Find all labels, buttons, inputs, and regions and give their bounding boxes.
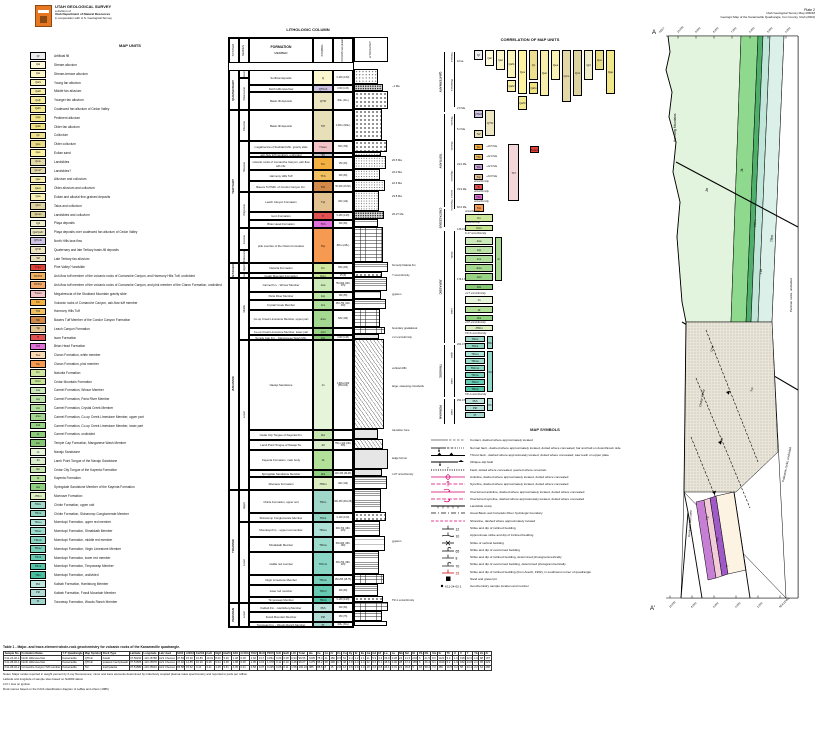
correlation-annotation: K-1? unconformity [465,232,486,235]
lith-annotation: vertical cliffs [392,367,407,370]
unit-label: Megabreccia of the Stoddard Mountain gra… [54,292,127,296]
unit-swatch: Tct/Thh [30,272,46,280]
map-units-title: MAP UNITS [30,44,230,49]
lith-system-band: JURASSIC [229,278,239,490]
unit-label: Stream-terrace alluvium [54,72,88,76]
lithologic-column-section: LITHOLOGIC COLUMN SYSTEM SERIES FORMATIO… [228,30,428,630]
unit-label: Bauers Tuff Member of the Condor Canyon … [54,318,130,322]
unit-swatch: TRcs [30,510,46,518]
lith-formation-cell: Navajo Sandstone [249,340,313,430]
lithology-pattern-segment [354,476,387,489]
lith-symbol-cell: Tcp [313,228,333,263]
map-unit-row: TcwClaron Formation, white member [30,351,230,360]
unit-label: Temple Cap Formation, Manganese Wash Mem… [54,441,126,445]
lith-thickness-cell: 0-50 (0-15) [333,85,353,92]
correlation-unit-box: Qaf1 [507,50,516,78]
table-cell: 100.24 [298,665,308,670]
lith-symbol-cell: TRcu [313,490,333,513]
map-symbol-description: Strike and dip of inclined bedding, dete… [470,555,562,559]
table-cell: 46.1 [383,665,390,670]
lith-symbol-cell: Tbf [313,110,333,141]
map-unit-row: TmpvPine Valley? landslide [30,263,230,272]
lith-thickness-cell [333,430,353,440]
correlation-series-label: Miocene [450,141,453,150]
lith-thickness-cell: 400 (120) [333,477,353,490]
lith-symbol-cell: TRcs [313,513,333,522]
map-symbol-description: Strike and dip of overturned bedding [470,548,520,552]
unit-label: Chinle Formation, Shinarump Conglomerate… [54,512,129,516]
lithology-pattern-segment [354,211,384,219]
correlation-annotation: ~20.5 Ma [486,145,497,148]
correlation-unit-box: Tcb [474,164,483,170]
lith-series-band: Lower [239,340,249,490]
correlation-unit-box: Kcm [465,225,493,231]
lith-thickness-cell: 150-250 (45-75) [333,575,353,585]
correlation-series-label: Upper [450,352,453,359]
lith-annotation: ~1 Ma [392,85,400,88]
lith-symbol-cell: Jnl [313,440,333,450]
unit-swatch: Taf [30,255,46,263]
unit-label: Cedar Mountain Formation [54,380,92,384]
map-unit-row: TcbBauers Tuff Member of the Condor Cany… [30,316,230,325]
lith-annotation: 23.8 Ma [392,195,402,198]
lith-thickness-cell: 100+ (30+) [333,622,353,627]
correlation-annotation: ~22.0 Ma [486,155,497,158]
unit-swatch: Qac [30,176,46,184]
cross-section-label: A [652,30,656,36]
lithology-pattern-segment [354,309,380,327]
map-unit-row: QatStream-terrace alluvium [30,69,230,78]
unit-swatch: Jnl [30,457,46,465]
map-unit-row: TiIsom Formation [30,333,230,342]
map-symbol-description: Fault, dotted where concealed, queried w… [470,468,546,472]
map-symbol-row: K11-24-02-1Geochemistry sample location … [430,583,660,590]
correlation-unit-box: Tcc [474,144,483,150]
lith-thickness-cell: 750-1,100 (230-335) [333,440,353,450]
correlation-unit-box: TRmu [465,351,485,357]
correlation-era-label: TERTIARY [438,153,441,168]
lith-symbol-cell: Jks [313,470,333,477]
correlation-unit-box: Jtm [465,284,493,290]
correlation-era-label: PERMIAN [438,405,441,419]
lith-thickness-cell: 600-700 (180-215) [333,522,353,537]
unit-swatch: Tmsm [30,290,46,298]
correlation-unit-box: Jc [495,237,502,281]
correlation-series-label: Pleistocene [450,78,453,90]
map-unit-row: QacAlluvium and colluvium [30,175,230,184]
map-symbol-description: Sand and gravel pit [470,577,497,581]
lith-system-band: TERTIARY [229,110,239,263]
map-unit-row: Qpl/QafCPlaya deposits over coalesced fa… [30,228,230,237]
map-unit-row: PtToroweap Formation, Woods Ranch Member [30,597,230,606]
correlation-unit-box: Qat [496,50,505,70]
correlation-unit-box: TRmt [465,386,485,392]
table-cell: 9 [411,665,418,670]
cross-section-label: JTRm [753,219,757,227]
lith-formation-cell: Brian Head Formation [249,220,313,228]
lith-formation-cell: Naturita Formation [249,263,313,273]
correlation-annotation: unconformity [474,190,489,193]
lith-formation-cell: Co-op Creek Limestone Member, lower part [249,328,313,335]
map-unit-row: JtmTemple Cap Formation, Manganese Wash … [30,439,230,448]
lith-formation-cell: Leach Canyon Formation [249,192,313,212]
lith-thickness-cell: 300 (90) [333,220,353,228]
unit-swatch: Qafo [30,123,46,131]
lith-formation-cell: Shnabkaib Member [249,537,313,552]
correlation-series-label: Lower [450,307,453,314]
unit-swatch: TRcu [30,501,46,509]
unit-swatch: Qaco [30,184,46,192]
lith-thickness-cell: 300-450 (90-135) [333,490,353,513]
lith-formation-cell: Moenave Formation [249,477,313,490]
unit-swatch: Qat [30,70,46,78]
map-unit-row: JcxCarmel Formation, Crystal Creek Membe… [30,404,230,413]
cross-section-label: TRm [770,235,774,242]
table-cell: 4.10 [195,665,205,670]
map-unit-row: PkhKaibab Formation, Harrisburg Member [30,580,230,589]
map-unit-row: QfArtificial fill [30,52,230,61]
map-unit-row: QafoOlder fan alluvium [30,122,230,131]
lithology-pattern-segment [354,109,382,140]
elevation-label: 10,000 [676,25,685,34]
unit-swatch: Qes [30,149,46,157]
lith-series-band: Lower [239,522,249,603]
correlation-annotation: ~23.8 Ma [486,175,497,178]
map-unit-row: Qaf1Young fan alluvium [30,78,230,87]
table-cell: 985 [308,665,316,670]
unit-label: Harmony Hills Tuff [54,309,80,313]
agency-line: in cooperation with U.S. Geological Surv… [55,17,112,20]
correlation-age-tick: 66.0 Ma [457,206,466,209]
map-unit-row: TmsmMegabreccia of the Stoddard Mountain… [30,289,230,298]
lith-annotation: 22.6 Ma [392,182,402,185]
map-unit-row: QapPediment alluvium [30,113,230,122]
lithology-pattern-segment [354,521,380,536]
unit-label: Quaternary and late Tertiary basin-fill … [54,248,119,252]
correlation-unit-box: Qal [485,50,494,66]
unit-swatch: TRms [30,527,46,535]
lith-thickness-cell: 0-100 (0-30) [333,513,353,522]
correlation-unit-box: Qms [562,50,571,102]
map-unit-row: JcpCarmel Formation, Paria River Member [30,395,230,404]
unit-swatch: Tmpv [30,264,46,272]
lith-thickness-cell: 150 (45) [333,157,353,170]
unit-label: Lamb Point Tongue of the Navajo Sandston… [54,459,117,463]
correlation-series-band: Miocene [454,128,456,163]
unit-label: Carmel Formation, Winsor Member [54,388,104,392]
unit-swatch: Kcm [30,378,46,386]
unit-label: Artificial fill [54,54,69,58]
unit-label: Kaibab Formation, Fossil Mountain Member [54,591,116,595]
lith-annotation: 22.0 Ma [392,171,402,174]
correlation-unit-box: TRmm [465,365,485,371]
lith-header-lithology: LITHOLOGY [354,37,388,62]
lith-symbol-cell: Thh [313,170,333,181]
lith-series-band: Eocene [239,228,249,250]
unit-swatch: Qc [30,132,46,140]
correlation-unit-box: Qco [595,50,604,70]
table-cell: trachydacite [102,665,129,670]
correlation-unit-box: TRcu [465,336,485,342]
map-unit-row: JkKayenta Formation [30,474,230,483]
lith-system-label: JURASSIC [232,376,235,391]
table-cell: 0.58 [250,665,258,670]
lith-system-band: TRIASSIC [229,490,239,603]
lithology-pattern-segment [354,299,386,309]
cross-section-drawing: AA'Harmony MountainsJnJkJTRmTRcTRmPermia… [646,22,822,616]
unit-swatch: Qaf2 [30,88,46,96]
lith-annotation: ? unconformity [392,274,410,277]
unit-label: Kaibab Formation, Harrisburg Member [54,582,108,586]
plate-header: Plate 2 Utah Geological Survey Map 206DM… [721,8,816,19]
correlation-series-band: Middle [454,231,456,278]
correlation-unit-box: Qaf2 [507,80,516,92]
unit-label: Late Tertiary fan alluvium [54,257,89,261]
map-symbol-description: Overturned anticline, dashed where appro… [470,490,584,494]
map-symbol-description: Syncline, dashed where approximately loc… [470,482,568,486]
unit-label: Springdale Sandstone Member of the Kayen… [54,485,135,489]
lith-thickness-cell: 750-900 (230-275) [333,278,353,292]
lith-formation-cell: Shinarump Conglomerate Member [249,513,313,522]
map-unit-row: QacoOlder alluvium and colluvium [30,184,230,193]
lith-annotation: boundary gradational [392,327,417,330]
unit-swatch: Tcc [30,299,46,307]
map-unit-row: TRmmMoenkopi Formation, middle red membe… [30,536,230,545]
map-unit-row: QTbfQuaternary and late Tertiary basin-f… [30,245,230,254]
lithology-pattern-segment [354,536,385,551]
unit-swatch: Qal [30,61,46,69]
unit-swatch: Jks [30,483,46,491]
lithology-pattern-segment [354,489,381,512]
correlation-unit-box: Thh [474,154,483,160]
unit-label: Eolian and alluvial fine-grained deposit… [54,195,110,199]
correlation-annotation: TR-1 unconformity [465,393,486,396]
lith-formation-cell: Fossil Mountain Member [249,612,313,622]
unit-swatch: JTRm [30,492,46,500]
correlation-unit-box: TRcs [465,343,485,349]
unit-swatch: Pkf [30,589,46,597]
unit-swatch: Jn [30,448,46,456]
correlation-unit-box: Qap [606,50,615,94]
lith-formation-cell: North Hills lava flow [249,85,313,92]
elevation-label: 10,000 [668,600,677,609]
lith-symbol-cell: QTbf [313,92,333,110]
map-unit-row: TafLate Tertiary fan alluvium [30,254,230,263]
correlation-unit-box: Pk [487,398,493,411]
map-symbol-description: Strike and dip of inclined bedding (from… [470,570,591,574]
lith-series-label: Middle [243,305,246,313]
table-cell: 286 [484,665,491,670]
lithology-pattern-segment [354,339,384,429]
lith-series-label: Lower [243,611,246,618]
correlation-annotation: unconformity [474,180,489,183]
elevation-label: 6,000 [748,26,756,34]
correlation-unit-box: Tmsm [530,146,539,153]
unit-label: Claron Formation, pink member [54,362,99,366]
unit-label: Cedar City Tongue of the Kayenta Formati… [54,468,117,472]
lith-annotation: J-2 unconformity [392,336,412,339]
lith-symbol-cell: Jcco [313,310,333,328]
cross-section-label: Jn [704,188,709,192]
lith-formation-cell: Carmel Fm. - Winsor Member [249,278,313,292]
map-unit-row: JnlLamb Point Tongue of the Navajo Sands… [30,456,230,465]
lith-formation-cell: Cedar City Tongue of Kayenta Fm. [249,430,313,440]
lith-series-band: Upper [239,263,249,273]
unit-swatch: Jccl [30,422,46,430]
map-unit-row: JTRmMoenave Formation [30,492,230,501]
lith-series-band: Upper [239,490,249,522]
correlation-unit-box: Jcx [465,255,493,263]
unit-label: Moenkopi Formation, Timpoweap Member [54,564,114,568]
unit-label: Colluvium [54,133,68,137]
lith-thickness-cell: 600-700 (180-215) [333,552,353,575]
cross-section-label: Permian rocks, undivided [789,278,793,312]
lith-symbol-cell: Jkc [313,430,333,440]
unit-label: Chinle Formation, upper unit [54,503,94,507]
lith-symbol-cell: TRmu [313,522,333,537]
lith-series-band: Paleocene [239,250,249,263]
elevation-label: 8,000 [690,601,698,609]
correlation-era-band: TERTIARY [444,114,446,207]
lith-annotation: 20.5 Ma [392,159,402,162]
lith-system-label: CRETACEOUS [232,263,235,278]
unit-swatch: Jtm [30,439,46,447]
unit-swatch: Jk [30,475,46,483]
unit-swatch: Qms [30,158,46,166]
ugs-logo-icon [35,5,52,27]
elevation-label: 9,000 [694,26,702,34]
unit-label: Coalesced fan alluvium of Cedar Valley [54,107,109,111]
table-cell: Kanarraville [61,665,83,670]
map-unit-row: TRcuChinle Formation, upper unit [30,500,230,509]
lith-series-band: Middle [239,278,249,340]
lith-annotation: ledge former [392,457,407,460]
unit-label: North Hills lava flow [54,239,82,243]
unit-swatch: Jcp [30,395,46,403]
map-unit-row: JccoCarmel Formation, Co-op Creek Limest… [30,412,230,421]
correlation-series-label: Holocene [450,52,453,62]
map-unit-row: JnNavajo Sandstone [30,448,230,457]
unit-swatch: Qpl [30,220,46,228]
lith-formation-cell: megabreccia of Stoddard Mtn. gravity sli… [249,141,313,153]
map-units-legend: MAP UNITS QfArtificial fillQalStream all… [30,44,230,606]
map-unit-row: TRmMoenkopi Formation, undivided [30,571,230,580]
correlation-series-label: Middle [450,251,453,258]
correlation-era-band: PERMIAN [444,399,446,424]
lithology-pattern-segment [354,156,386,169]
lith-symbol-cell: Tql [313,192,333,212]
unit-label: Carmel Formation, Co-op Creek Limestone … [54,415,144,419]
unit-swatch: Ti [30,334,46,342]
correlation-series-label: Eocene [450,190,453,198]
lith-thickness-cell: 50-200 (15-60) [333,181,353,192]
correlation-unit-box: Qf [474,50,483,60]
table-cell: 4.05 [232,665,240,670]
lithology-pattern-segment [354,91,388,109]
unit-label: Isom Formation [54,336,76,340]
unit-label: Carmel Formation, Crystal Creek Member [54,406,113,410]
lith-thickness-cell: 300+ (90+) [333,92,353,110]
unit-swatch: Tct/Tcp [30,281,46,289]
lith-thickness-cell: 500 (150) [333,141,353,153]
map-unit-row: JksSpringdale Sandstone Member of the Ka… [30,483,230,492]
unit-swatch: Tql [30,325,46,333]
lith-symbol-cell: Jk [313,450,333,470]
unit-swatch: Qms? [30,167,46,175]
unit-label: Older fan alluvium [54,125,80,129]
unit-label: Moenkopi Formation, lower red member [54,556,111,560]
unit-label: Younger fan alluvium [54,98,84,102]
unit-swatch: Qmt [30,202,46,210]
lith-series-band: Pliocene [239,110,249,141]
map-symbol-description: Strike and dip of inclined bedding [470,526,516,530]
correlation-age-tick: 10 ka [457,60,463,63]
correlation-series-band: Upper [454,345,456,365]
unit-label: Older colluvium [54,142,76,146]
lith-symbol-cell: QTbnh [313,85,333,92]
table-cell: ALS Chemex [158,665,176,670]
correlation-series-band: Oligocene [454,163,456,188]
correlation-annotation: unconformity [465,221,480,224]
unit-label: Pine Valley? landslide [54,265,85,269]
lith-header-series: SERIES [239,38,249,63]
unit-label: Moenkopi Formation, undivided [54,573,98,577]
map-unit-row: QTbnhNorth Hills lava flow [30,237,230,246]
lith-system-band: QUATERNARY [229,70,239,110]
unit-label: Ash-flow tuff member of the volcanic roc… [54,274,195,278]
lith-series-band: Pleistocene [239,78,249,110]
map-unit-row: TccVolcanic rocks of Comanche Canyon, as… [30,298,230,307]
correlation-age-tick: 2.6 Ma [457,107,465,110]
unit-label: Older alluvium and colluvium [54,186,95,190]
map-unit-row: TbhBrian Head Formation [30,342,230,351]
unit-swatch: TRmt [30,563,46,571]
lith-series-label: Lower [243,559,246,566]
cross-section: AA'Harmony MountainsJnJkJTRmTRcTRmPermia… [646,22,822,616]
map-symbol-description: Approximate strike and dip of inclined b… [470,533,533,537]
cross-section-label: A' [650,606,655,612]
lith-thickness-cell: 0-200 (0-60) [333,70,353,85]
lith-formation-cell: Paria River Member [249,292,313,300]
lithology-pattern-segment [354,602,388,611]
lith-symbol-cell: Kn [313,263,333,273]
elevation-label: FEET [658,26,666,34]
unit-label: Landslides? [54,169,71,173]
unit-label: Volcanic rocks of Comanche Canyon, ash-f… [54,301,138,305]
lithology-pattern-segment [354,69,378,84]
map-unit-row: QalStream alluvium [30,61,230,70]
unit-label: Stream alluvium [54,63,77,67]
correlation-unit-box: Qea [551,50,560,80]
map-unit-row: QesEolian sand [30,149,230,158]
unit-label: Talus and colluvium [54,204,82,208]
unit-label: Young fan alluvium [54,81,81,85]
lith-formation-cell: volcanic rocks of Comanche Canyon, ash-f… [249,157,313,170]
lith-thickness-cell [333,328,353,335]
table-cell: 65.58 [176,665,185,670]
lith-annotation: J-0? unconformity [392,473,413,476]
correlation-unit-box: Qes [518,50,527,94]
lith-formation-cell: Co-op Creek Limestone Member, upper part [249,310,313,328]
correlation-annotation: unconformity [465,210,480,213]
lith-thickness-cell: 180 (55) [333,292,353,300]
unit-swatch: Qap [30,114,46,122]
unit-swatch: Jcw [30,387,46,395]
lith-formation-cell: lower red member [249,585,313,597]
lith-formation-cell: Isom Formation [249,212,313,220]
unit-swatch: Jcco [30,413,46,421]
table-cell: 37.51580 [129,665,142,670]
